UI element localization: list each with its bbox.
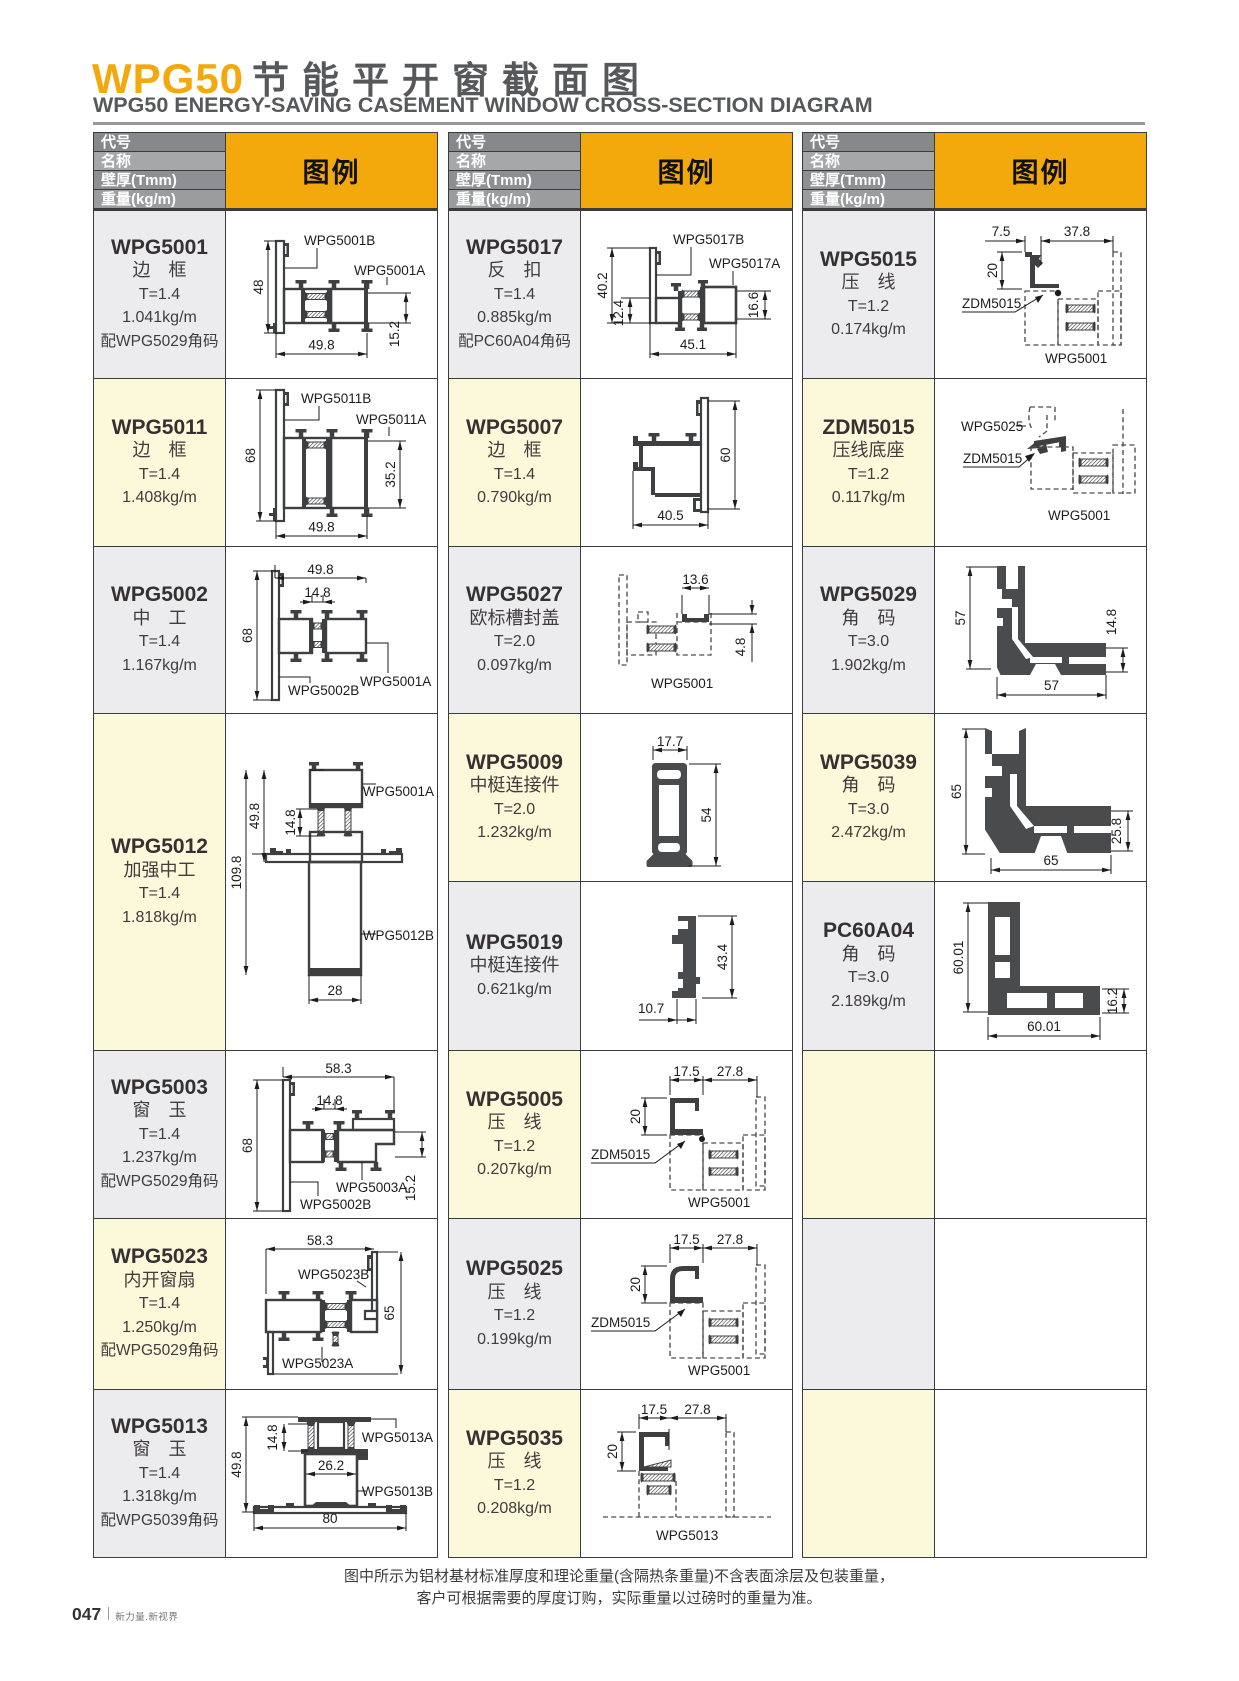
svg-text:49.8: 49.8 — [247, 803, 262, 829]
svg-text:65: 65 — [382, 1305, 397, 1320]
svg-text:WPG5013A: WPG5013A — [362, 1430, 433, 1445]
svg-text:68: 68 — [240, 1138, 255, 1153]
svg-text:68: 68 — [243, 448, 258, 463]
svg-text:WPG5002B: WPG5002B — [300, 1197, 371, 1212]
svg-text:17.5: 17.5 — [673, 1064, 699, 1079]
svg-text:15.2: 15.2 — [387, 321, 402, 347]
svg-text:4.8: 4.8 — [733, 638, 748, 657]
svg-text:14.8: 14.8 — [283, 809, 298, 835]
svg-text:WPG5013B: WPG5013B — [362, 1484, 433, 1499]
svg-text:65: 65 — [1043, 853, 1058, 868]
svg-text:WPG5017A: WPG5017A — [709, 256, 780, 271]
svg-text:14.8: 14.8 — [1104, 609, 1119, 635]
svg-text:16.6: 16.6 — [746, 292, 761, 318]
svg-text:40.5: 40.5 — [657, 508, 683, 523]
svg-text:58.3: 58.3 — [307, 1233, 333, 1248]
svg-text:12.4: 12.4 — [611, 299, 626, 326]
svg-text:68: 68 — [240, 628, 255, 643]
svg-text:7.5: 7.5 — [992, 224, 1011, 239]
svg-text:WPG5001: WPG5001 — [688, 1363, 750, 1378]
svg-text:26.2: 26.2 — [318, 1458, 344, 1473]
svg-text:10.7: 10.7 — [638, 1001, 664, 1016]
svg-text:25.8: 25.8 — [1109, 818, 1124, 844]
svg-text:WPG5001: WPG5001 — [651, 676, 713, 691]
svg-text:WPG5023A: WPG5023A — [282, 1356, 353, 1371]
svg-text:WPG5017B: WPG5017B — [673, 232, 744, 247]
svg-text:49.8: 49.8 — [308, 338, 334, 353]
svg-text:20: 20 — [605, 1444, 620, 1459]
svg-text:65: 65 — [949, 784, 964, 799]
svg-text:14.8: 14.8 — [304, 585, 330, 600]
svg-text:WPG5025: WPG5025 — [961, 419, 1023, 434]
svg-text:49.8: 49.8 — [307, 562, 333, 577]
svg-text:60: 60 — [718, 447, 733, 462]
svg-text:45.1: 45.1 — [680, 337, 706, 352]
svg-text:57: 57 — [1044, 678, 1059, 693]
svg-text:WPG5003A: WPG5003A — [336, 1180, 407, 1195]
svg-text:14.8: 14.8 — [265, 1424, 280, 1450]
svg-text:17.5: 17.5 — [673, 1232, 699, 1247]
svg-text:WPG5011B: WPG5011B — [301, 391, 371, 406]
svg-text:43.4: 43.4 — [715, 943, 730, 970]
svg-text:60.01: 60.01 — [1027, 1019, 1061, 1034]
svg-text:17.5: 17.5 — [641, 1402, 667, 1417]
svg-text:57: 57 — [953, 610, 968, 625]
svg-text:109.8: 109.8 — [229, 856, 244, 890]
svg-text:WPG5001B: WPG5001B — [304, 233, 375, 248]
svg-text:58.3: 58.3 — [325, 1061, 351, 1076]
svg-text:16.2: 16.2 — [1105, 988, 1120, 1014]
svg-text:20: 20 — [628, 1109, 643, 1124]
svg-text:ZDM5015: ZDM5015 — [962, 296, 1021, 311]
svg-text:27.8: 27.8 — [717, 1064, 743, 1079]
svg-text:WPG5011A: WPG5011A — [356, 412, 426, 427]
svg-text:WPG5001A: WPG5001A — [360, 674, 431, 689]
svg-text:WPG5001A: WPG5001A — [363, 784, 434, 799]
svg-text:48: 48 — [251, 279, 266, 294]
svg-text:WPG5001A: WPG5001A — [354, 263, 425, 278]
svg-text:14.8: 14.8 — [316, 1093, 342, 1108]
svg-text:ZDM5015: ZDM5015 — [963, 451, 1022, 466]
svg-text:WPG5001: WPG5001 — [1045, 351, 1107, 366]
svg-text:40.2: 40.2 — [595, 272, 610, 298]
svg-text:37.8: 37.8 — [1064, 224, 1090, 239]
svg-text:WPG5001: WPG5001 — [1048, 508, 1110, 523]
svg-text:28: 28 — [327, 983, 342, 998]
svg-text:ZDM5015: ZDM5015 — [591, 1315, 650, 1330]
svg-text:WPG5013: WPG5013 — [656, 1528, 718, 1543]
svg-text:80: 80 — [322, 1511, 337, 1526]
svg-text:49.8: 49.8 — [308, 520, 334, 535]
svg-text:ZDM5015: ZDM5015 — [591, 1147, 650, 1162]
svg-text:WPG5001: WPG5001 — [688, 1195, 750, 1210]
svg-text:WPG5023B: WPG5023B — [298, 1267, 369, 1282]
svg-text:WPG5012B: WPG5012B — [363, 928, 434, 943]
svg-text:20: 20 — [628, 1277, 643, 1292]
svg-text:27.8: 27.8 — [717, 1232, 743, 1247]
svg-text:27.8: 27.8 — [684, 1402, 710, 1417]
svg-text:20: 20 — [985, 263, 1000, 278]
svg-text:49.8: 49.8 — [229, 1451, 244, 1477]
svg-text:WPG5002B: WPG5002B — [288, 683, 359, 698]
svg-text:17.7: 17.7 — [657, 734, 683, 749]
svg-text:13.6: 13.6 — [682, 572, 708, 587]
svg-text:60.01: 60.01 — [951, 941, 966, 975]
svg-text:35.2: 35.2 — [383, 461, 398, 487]
svg-text:54: 54 — [699, 807, 714, 823]
